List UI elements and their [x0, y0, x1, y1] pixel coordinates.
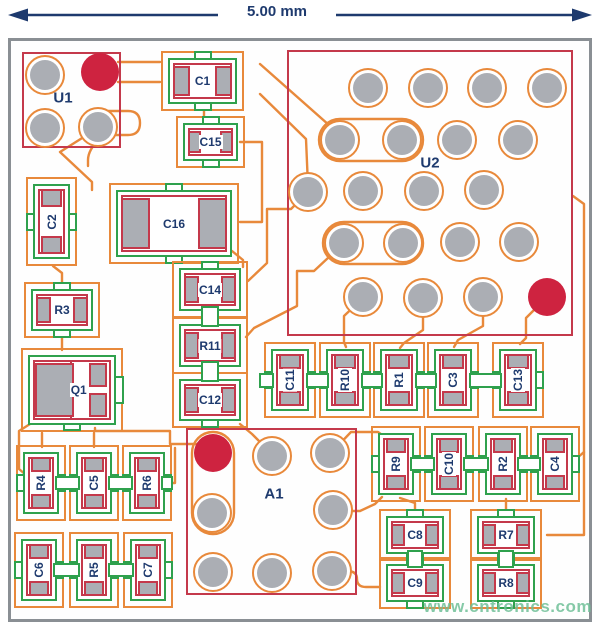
label-c7: C7 — [141, 561, 155, 578]
component-c13: C13 — [499, 349, 537, 411]
ball-pad — [440, 222, 480, 262]
mask-tab — [110, 474, 119, 492]
label-r6: R6 — [140, 474, 154, 491]
label-r7: R7 — [497, 528, 514, 542]
mask-tab — [571, 455, 580, 473]
pcb-layout-figure: 5.00 mm — [0, 0, 600, 629]
terminal-pad — [482, 572, 496, 594]
terminal-pad — [391, 524, 405, 546]
pin-pad — [89, 363, 107, 387]
mask-tab — [497, 509, 515, 518]
ball-pad — [527, 68, 567, 108]
component-c16: C16 — [116, 190, 232, 257]
mask-tab — [53, 282, 71, 291]
ball-pad — [498, 120, 538, 160]
terminal-pad — [198, 198, 227, 249]
label-q1: Q1 — [70, 383, 88, 397]
label-c16: C16 — [162, 217, 186, 231]
mask-tab — [201, 317, 219, 326]
terminal-pad — [29, 581, 49, 596]
terminal-pad — [41, 236, 62, 254]
ball-pad — [313, 490, 353, 530]
component-c1: C1 — [168, 58, 237, 104]
component-c11: C11 — [271, 349, 309, 411]
terminal-pad — [388, 391, 410, 406]
ball-pad — [324, 223, 364, 263]
terminal-pad — [507, 391, 529, 406]
mask-tab — [530, 455, 539, 473]
component-c6: C6 — [21, 539, 57, 601]
mask-tab — [194, 51, 212, 60]
mask-tab — [406, 600, 424, 609]
label-c15: C15 — [198, 135, 222, 149]
component-r10: R10 — [326, 349, 364, 411]
terminal-pad — [439, 438, 459, 453]
terminal-pad — [121, 198, 150, 249]
ball-pad — [499, 222, 539, 262]
label-r2: R2 — [496, 455, 510, 472]
mask-tab — [201, 419, 219, 428]
component-c15: C15 — [183, 123, 238, 161]
terminal-pad — [442, 354, 464, 369]
ball-pad — [408, 68, 448, 108]
terminal-pad — [73, 297, 88, 323]
mask-tab — [406, 509, 424, 518]
terminal-pad — [425, 524, 439, 546]
mask-tab — [416, 371, 425, 389]
label-c14: C14 — [198, 283, 222, 297]
mask-tab — [164, 561, 173, 579]
terminal-pad — [29, 544, 49, 559]
label-c4: C4 — [548, 455, 562, 472]
label-c3: C3 — [446, 371, 460, 388]
label-r1: R1 — [392, 371, 406, 388]
label-c8: C8 — [406, 528, 423, 542]
mask-tab — [14, 561, 23, 579]
terminal-pad — [334, 391, 356, 406]
mask-tab — [371, 455, 380, 473]
terminal-pad — [425, 572, 439, 594]
terminal-pad — [36, 297, 51, 323]
component-r4: R4 — [23, 452, 59, 514]
label-u2: U2 — [420, 155, 439, 172]
terminal-pad — [279, 391, 301, 406]
label-c10: C10 — [442, 452, 456, 476]
ball-pad — [343, 171, 383, 211]
label-r4: R4 — [34, 474, 48, 491]
arrowhead-right-icon — [572, 9, 592, 22]
mask-tab — [69, 561, 78, 579]
terminal-pad — [84, 494, 104, 509]
component-c2: C2 — [33, 184, 70, 259]
ball-pad — [437, 120, 477, 160]
ball-pad — [288, 172, 328, 212]
ball-pad — [252, 553, 292, 593]
fiducial-pad — [194, 434, 232, 472]
mask-tab — [16, 474, 25, 492]
label-r11: R11 — [198, 339, 221, 353]
terminal-pad — [493, 475, 513, 490]
mask-tab — [406, 557, 424, 566]
terminal-pad — [545, 438, 565, 453]
component-c8: C8 — [386, 516, 444, 554]
arrowhead-left-icon — [8, 9, 28, 22]
ball-pad — [320, 120, 360, 160]
ball-pad — [252, 436, 292, 476]
ball-pad — [403, 278, 443, 318]
ball-pad — [467, 68, 507, 108]
mask-tab — [53, 329, 71, 338]
label-r10: R10 — [338, 368, 352, 392]
mask-tab — [519, 455, 528, 473]
mask-tab — [26, 213, 35, 231]
component-r5: R5 — [76, 539, 112, 601]
terminal-pad — [386, 475, 406, 490]
terminal-pad — [138, 581, 158, 596]
terminal-pad — [221, 332, 236, 359]
component-r7: R7 — [477, 516, 535, 554]
label-u1: U1 — [53, 90, 72, 107]
tab-pad — [35, 363, 74, 417]
ball-pad — [382, 120, 422, 160]
label-c12: C12 — [198, 393, 222, 407]
component-r11: R11 — [179, 324, 241, 367]
terminal-pad — [221, 276, 236, 303]
terminal-pad — [391, 572, 405, 594]
component-c14: C14 — [179, 268, 241, 311]
terminal-pad — [184, 332, 199, 359]
label-r5: R5 — [87, 561, 101, 578]
mask-tab — [465, 455, 474, 473]
label-c9: C9 — [406, 576, 423, 590]
terminal-pad — [184, 276, 199, 303]
mask-tab — [535, 371, 544, 389]
mask-tab — [492, 371, 501, 389]
mask-tab — [57, 474, 66, 492]
mask-tab — [122, 474, 131, 492]
ball-pad — [192, 493, 232, 533]
mask-tab — [478, 455, 487, 473]
terminal-pad — [516, 524, 530, 546]
label-r9: R9 — [389, 455, 403, 472]
terminal-pad — [482, 524, 496, 546]
ball-pad — [25, 108, 65, 148]
terminal-pad — [84, 457, 104, 472]
label-c5: C5 — [87, 474, 101, 491]
component-c5: C5 — [76, 452, 112, 514]
terminal-pad — [386, 438, 406, 453]
label-c2: C2 — [45, 213, 59, 230]
terminal-pad — [41, 189, 62, 207]
terminal-pad — [31, 494, 51, 509]
component-r3: R3 — [31, 289, 93, 331]
terminal-pad — [138, 544, 158, 559]
terminal-pad — [388, 354, 410, 369]
label-c11: C11 — [283, 368, 297, 391]
ball-pad — [464, 170, 504, 210]
mask-tab — [319, 371, 328, 389]
terminal-pad — [137, 494, 157, 509]
component-c10: C10 — [431, 433, 467, 495]
terminal-pad — [507, 354, 529, 369]
terminal-pad — [84, 581, 104, 596]
mask-tab — [55, 561, 64, 579]
mask-tab — [201, 261, 219, 270]
mask-tab — [110, 561, 119, 579]
component-c4: C4 — [537, 433, 573, 495]
mask-tab — [470, 371, 479, 389]
component-c12: C12 — [179, 379, 241, 421]
watermark: www.cntronics.com — [424, 597, 592, 617]
ball-pad — [343, 277, 383, 317]
mask-tab — [201, 372, 219, 381]
terminal-pad — [215, 66, 232, 96]
mask-tab — [307, 371, 316, 389]
label-r3: R3 — [53, 303, 70, 317]
terminal-pad — [84, 544, 104, 559]
terminal-pad — [545, 475, 565, 490]
fiducial-pad — [528, 278, 566, 316]
ball-pad — [193, 552, 233, 592]
ball-pad — [78, 107, 118, 147]
terminal-pad — [137, 457, 157, 472]
ball-pad — [348, 68, 388, 108]
mask-tab — [362, 371, 371, 389]
mask-tab — [264, 371, 273, 389]
terminal-pad — [31, 457, 51, 472]
mask-tab — [163, 474, 172, 492]
label-r8: R8 — [497, 576, 514, 590]
terminal-pad — [516, 572, 530, 594]
terminal-pad — [442, 391, 464, 406]
mask-tab — [68, 213, 77, 231]
mask-tab — [114, 376, 124, 404]
component-r6: R6 — [129, 452, 165, 514]
label-a1: A1 — [264, 486, 283, 503]
mask-tab — [427, 371, 436, 389]
terminal-pad — [173, 66, 190, 96]
mask-tab — [202, 159, 220, 168]
mask-tab — [69, 474, 78, 492]
component-q1: Q1 — [28, 355, 116, 425]
mask-tab — [424, 455, 433, 473]
component-r1: R1 — [380, 349, 418, 411]
mask-tab — [194, 102, 212, 111]
mask-tab — [373, 371, 382, 389]
label-c1: C1 — [194, 74, 211, 88]
component-r2: R2 — [485, 433, 521, 495]
component-r9: R9 — [378, 433, 414, 495]
mask-tab — [165, 183, 183, 192]
ball-pad — [312, 551, 352, 591]
mask-tab — [412, 455, 421, 473]
terminal-pad — [279, 354, 301, 369]
component-c3: C3 — [434, 349, 472, 411]
ball-pad — [463, 277, 503, 317]
dimension-label: 5.00 mm — [222, 3, 332, 20]
terminal-pad — [221, 387, 236, 413]
fiducial-pad — [81, 53, 119, 91]
mask-tab — [497, 557, 515, 566]
terminal-pad — [184, 387, 199, 413]
label-c6: C6 — [32, 561, 46, 578]
ball-pad — [383, 223, 423, 263]
terminal-pad — [493, 438, 513, 453]
terminal-pad — [334, 354, 356, 369]
ball-pad — [310, 433, 350, 473]
terminal-pad — [439, 475, 459, 490]
mask-tab — [123, 561, 132, 579]
pin-pad — [89, 393, 107, 417]
mask-tab — [63, 423, 81, 431]
label-c13: C13 — [511, 368, 525, 392]
mask-tab — [202, 116, 220, 125]
ball-pad — [404, 171, 444, 211]
component-c7: C7 — [130, 539, 166, 601]
